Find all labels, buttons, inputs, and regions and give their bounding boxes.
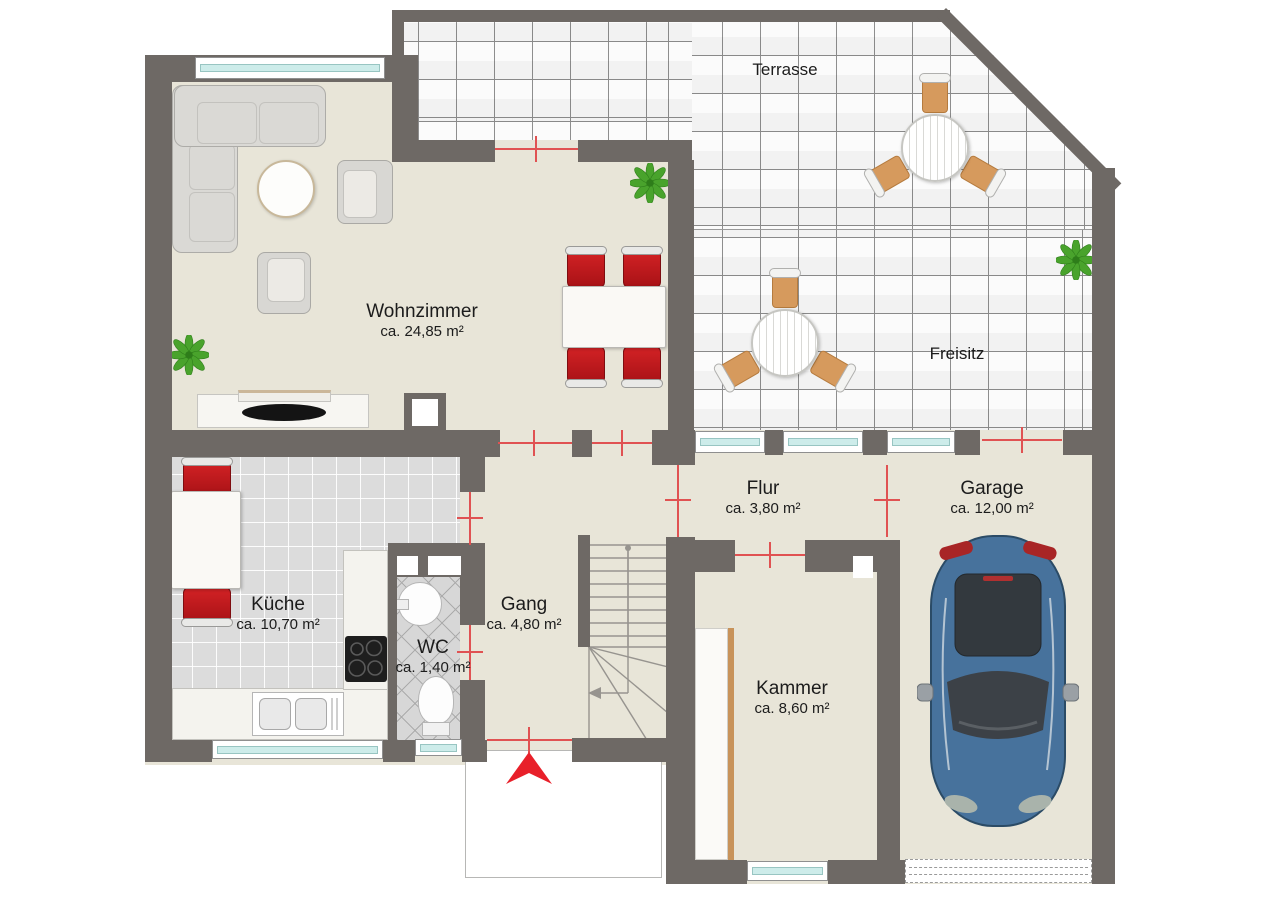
wall-segment [383,740,415,762]
window [695,431,765,453]
window [212,740,383,759]
wall-segment [460,457,485,492]
wc-sink [398,582,442,626]
wall-segment [695,540,735,572]
room-label-freisitz: Freisitz [877,343,1037,365]
wall-segment [572,430,592,457]
wall-niche [853,556,873,578]
patio-table [901,114,969,182]
room-name: Gang [454,594,594,616]
coffee-table [257,160,315,218]
dining-chair [623,346,661,384]
dining-chair [623,250,661,288]
wall-segment [398,10,950,22]
wall-segment [578,140,692,162]
door-measure [886,465,888,537]
room-name: Küche [188,594,368,616]
room-area: ca. 12,00 m² [912,500,1072,518]
sofa-horizontal [174,85,326,147]
room-label-wc: WC ca. 1,40 m² [373,637,493,677]
room-label-gang: Gang ca. 4,80 m² [454,594,594,634]
wall-segment [145,430,500,457]
room-area: ca. 4,80 m² [454,616,594,634]
room-name: Wohnzimmer [312,301,532,323]
window [783,431,863,453]
room-label-terrasse: Terrasse [705,59,865,81]
door-measure-tick [621,430,623,456]
plant-icon [1056,240,1096,280]
wall-segment [765,430,783,455]
wall-segment [1063,430,1092,455]
kammer-closet [695,628,728,860]
door-measure-tick [528,727,530,753]
door-measure-tick [535,136,537,162]
chimney-niche [412,399,438,426]
dining-chair [567,250,605,288]
wall-segment [400,140,495,162]
plant-icon [169,335,209,375]
wall-segment [668,160,694,457]
stairs-icon [588,455,668,745]
kammer-closet-wood-edge [728,628,734,860]
wall-segment [462,740,487,762]
wall-segment [652,430,695,465]
patio-set [860,73,1010,223]
terrasse-tiles [404,22,692,140]
wall-niche [397,556,418,575]
room-name: Terrasse [705,59,865,81]
door-measure-tick [874,499,900,501]
room-area: ca. 24,85 m² [312,323,532,341]
door-measure-tick [457,517,483,519]
wall-segment [145,740,212,762]
window [887,431,955,453]
wall-segment [666,537,695,884]
room-name: Flur [693,478,833,500]
room-name: Kammer [712,678,872,700]
window [415,739,462,756]
wall-segment [955,430,980,455]
window [747,861,828,881]
armchair [337,160,393,224]
room-area: ca. 1,40 m² [373,659,493,677]
entrance-porch [465,750,662,878]
room-name: Garage [912,478,1072,500]
room-label-wohnzimmer: Wohnzimmer ca. 24,85 m² [312,301,532,341]
wall-segment [666,860,747,884]
kitchen-sink [252,692,344,736]
door-measure [677,465,679,537]
entrance-arrow-icon [504,752,554,785]
room-area: ca. 10,70 m² [188,616,368,634]
room-label-garage: Garage ca. 12,00 m² [912,478,1072,518]
wall-segment [828,860,905,884]
floorplan: Wohnzimmer ca. 24,85 m² Küche ca. 10,70 … [0,0,1280,905]
wall-segment [145,55,172,762]
wall-segment [877,540,900,884]
room-label-kammer: Kammer ca. 8,60 m² [712,678,872,718]
room-name: Freisitz [877,343,1037,365]
wall-niche [428,556,461,575]
door-measure-tick [1021,427,1023,453]
door-measure-tick [769,542,771,568]
room-area: ca. 3,80 m² [693,500,833,518]
dining-chair [567,346,605,384]
car-icon [917,532,1079,830]
patio-set [710,268,860,418]
door-measure [498,442,572,444]
plant-icon [630,163,670,203]
wall-segment [460,680,485,742]
room-area: ca. 8,60 m² [712,700,872,718]
wall-segment [1092,168,1115,884]
room-name: WC [373,637,493,659]
kitchen-table [171,491,241,589]
room-label-flur: Flur ca. 3,80 m² [693,478,833,518]
window [195,57,385,79]
sideboard [197,394,369,428]
door-measure-tick [533,430,535,456]
patio-table [751,309,819,377]
armchair [257,252,311,314]
garage-door [905,859,1092,883]
dining-table [562,286,666,348]
room-label-kueche: Küche ca. 10,70 m² [188,594,368,634]
wc-toilet [414,676,458,738]
wall-segment [863,430,887,455]
door-measure-tick [665,499,691,501]
